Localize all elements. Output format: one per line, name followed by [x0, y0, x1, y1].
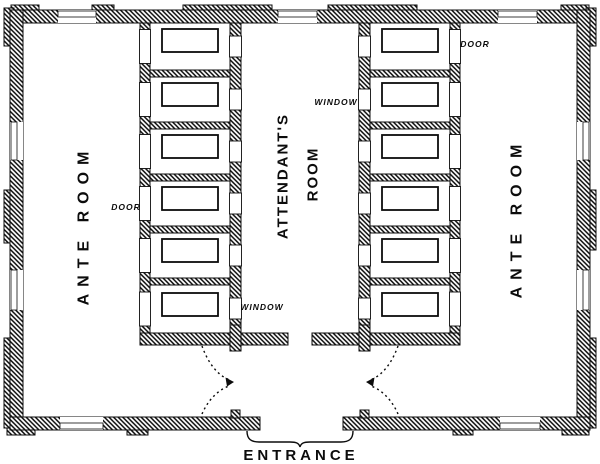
- door-opening: [140, 135, 151, 169]
- window-opening: [58, 10, 96, 23]
- window-opening: [230, 193, 242, 214]
- cell-slab: [162, 83, 218, 106]
- cell-slab: [382, 293, 438, 316]
- door-opening: [450, 292, 461, 326]
- wall-pilasters: [4, 5, 596, 435]
- window-opening: [359, 193, 371, 214]
- window-annotation-lower: WINDOW: [240, 302, 283, 312]
- cell-slab: [382, 187, 438, 210]
- door-annotation-left: DOOR: [111, 202, 141, 212]
- window-annotation-upper: WINDOW: [314, 97, 357, 107]
- cell-slab: [162, 239, 218, 262]
- window-opening: [278, 10, 317, 23]
- window-opening: [359, 36, 371, 57]
- window-opening: [577, 270, 590, 310]
- cell-slab: [382, 29, 438, 52]
- window-opening: [359, 298, 371, 319]
- window-opening: [230, 245, 242, 266]
- floor-plan-page: ANTE ROOM ANTE ROOM ATTENDANT'S ROOM DOO…: [0, 0, 600, 464]
- window-opening: [60, 417, 103, 430]
- door-opening: [450, 135, 461, 169]
- window-opening: [359, 245, 371, 266]
- cell-partition: [370, 174, 450, 181]
- window-wall: [230, 23, 241, 333]
- window-opening: [230, 36, 242, 57]
- door-opening: [450, 239, 461, 273]
- cell-partition: [150, 278, 230, 285]
- arrowhead-icon: [366, 378, 375, 387]
- window-opening: [498, 10, 537, 23]
- bottom-wall: [312, 333, 460, 345]
- door-annotation-right: DOOR: [460, 39, 490, 49]
- door-opening: [450, 187, 461, 221]
- door-wall: [450, 23, 460, 333]
- door-opening: [140, 239, 151, 273]
- outer-walls: [10, 10, 590, 430]
- cell-slab: [382, 135, 438, 158]
- door-opening: [140, 30, 151, 64]
- bottom-wall: [140, 333, 288, 345]
- attendants-room-label-line1: ATTENDANT'S: [275, 113, 292, 239]
- cell-partition: [370, 122, 450, 129]
- outer-windows: [10, 10, 590, 430]
- cell-partition: [150, 122, 230, 129]
- floor-plan: ANTE ROOM ANTE ROOM ATTENDANT'S ROOM DOO…: [0, 0, 600, 464]
- window-opening: [230, 89, 242, 110]
- attendants-room-label-line2: ROOM: [305, 147, 322, 202]
- window-opening: [10, 270, 23, 310]
- cell-partition: [150, 70, 230, 77]
- cell-slab: [162, 135, 218, 158]
- right-ante-room-label: ANTE ROOM: [509, 138, 526, 299]
- cell-slab: [382, 83, 438, 106]
- window-opening: [359, 141, 371, 162]
- door-opening: [140, 292, 151, 326]
- cell-partition: [370, 70, 450, 77]
- door-opening: [140, 187, 151, 221]
- window-opening: [10, 122, 23, 160]
- cell-partition: [150, 226, 230, 233]
- arrowhead-icon: [226, 378, 235, 387]
- left-ante-room-label: ANTE ROOM: [76, 145, 93, 306]
- cell-partition: [370, 278, 450, 285]
- cell-slab: [162, 293, 218, 316]
- right-cell-block: [312, 23, 461, 345]
- cell-slab: [162, 29, 218, 52]
- window-opening: [230, 141, 242, 162]
- cell-partition: [150, 174, 230, 181]
- window-opening: [500, 417, 540, 430]
- door-wall: [140, 23, 150, 333]
- window-opening: [577, 122, 590, 160]
- door-opening: [450, 83, 461, 117]
- cell-partition: [370, 226, 450, 233]
- cell-slab: [162, 187, 218, 210]
- window-wall: [359, 23, 370, 333]
- door-swing-arcs: [202, 346, 398, 414]
- entrance-brace: [247, 431, 353, 447]
- window-opening: [359, 89, 371, 110]
- entrance-label: ENTRANCE: [243, 447, 358, 464]
- left-cell-block: [140, 23, 289, 345]
- door-opening: [140, 83, 151, 117]
- door-opening: [450, 30, 461, 64]
- cell-slab: [382, 239, 438, 262]
